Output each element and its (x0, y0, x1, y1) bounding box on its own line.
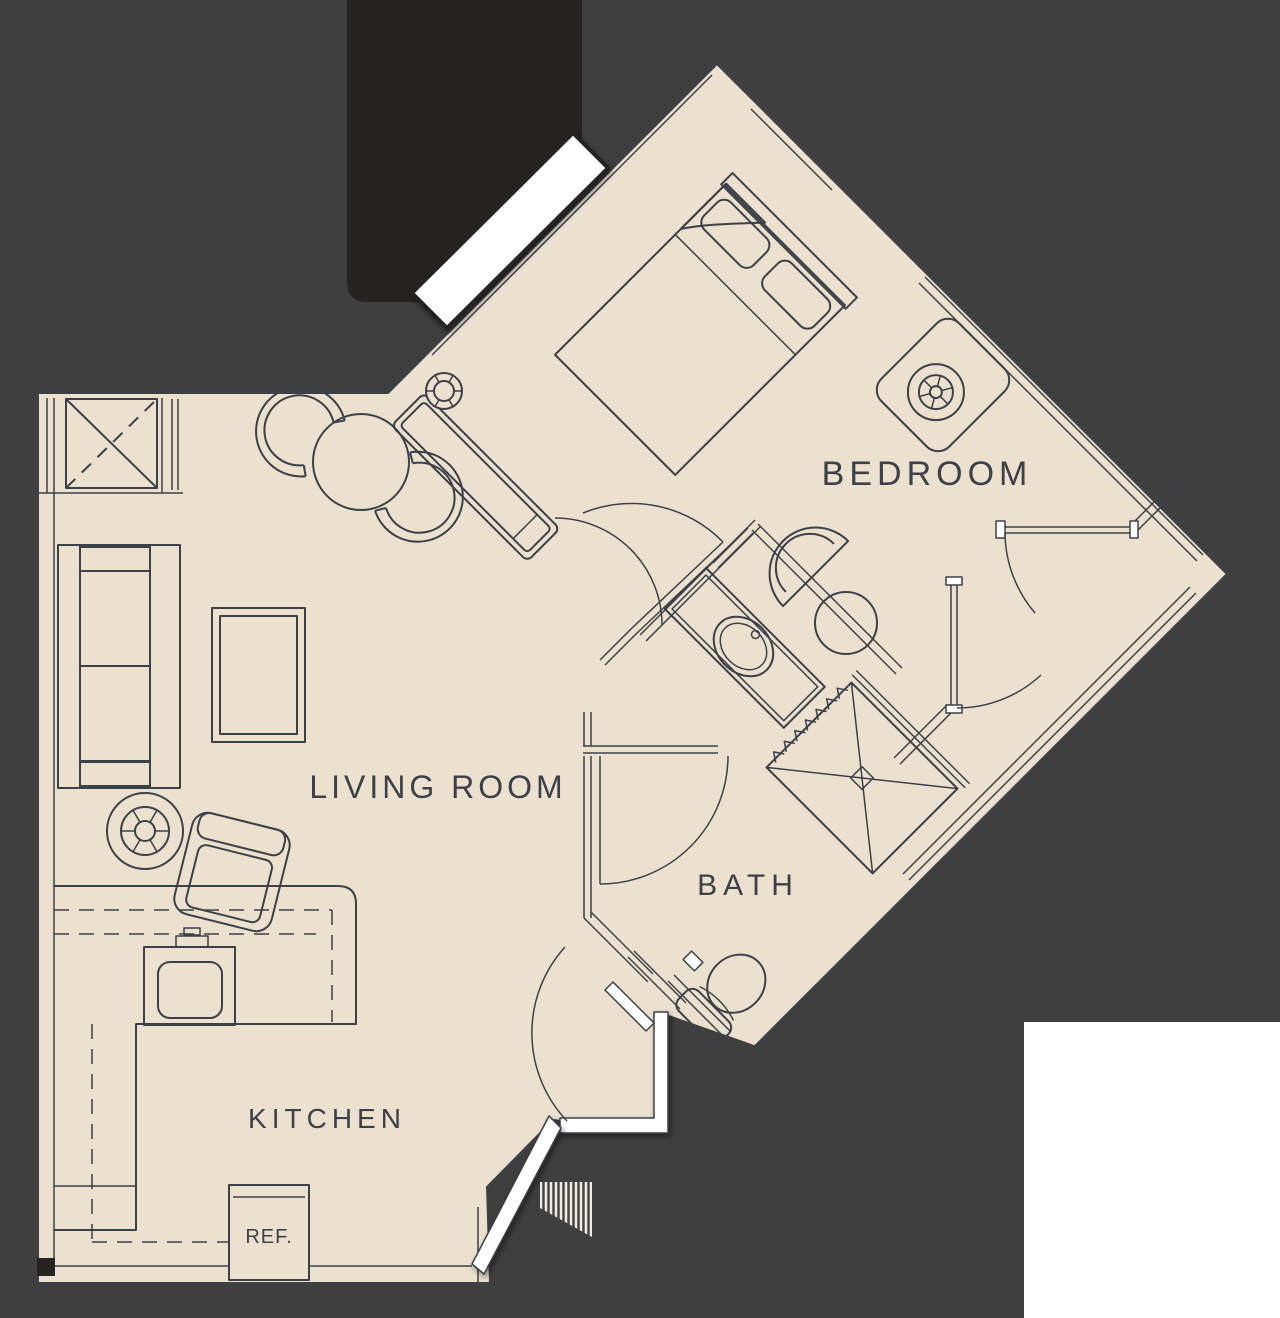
ceiling-fan-icon (426, 373, 462, 409)
refrigerator-label: REF. (245, 1226, 292, 1248)
room-label-bath: BATH (697, 869, 799, 902)
room-label-bedroom: BEDROOM (822, 455, 1033, 493)
floor-plan-svg: REF. BEDROOM LIVING ROOM BATH KITCHEN (0, 0, 1280, 1318)
white-corner-block (1024, 1022, 1280, 1318)
room-label-kitchen: KITCHEN (248, 1103, 406, 1134)
floor-plan-page: REF. BEDROOM LIVING ROOM BATH KITCHEN (0, 0, 1280, 1318)
room-label-living-room: LIVING ROOM (309, 769, 566, 805)
refrigerator: REF. (229, 1185, 309, 1280)
